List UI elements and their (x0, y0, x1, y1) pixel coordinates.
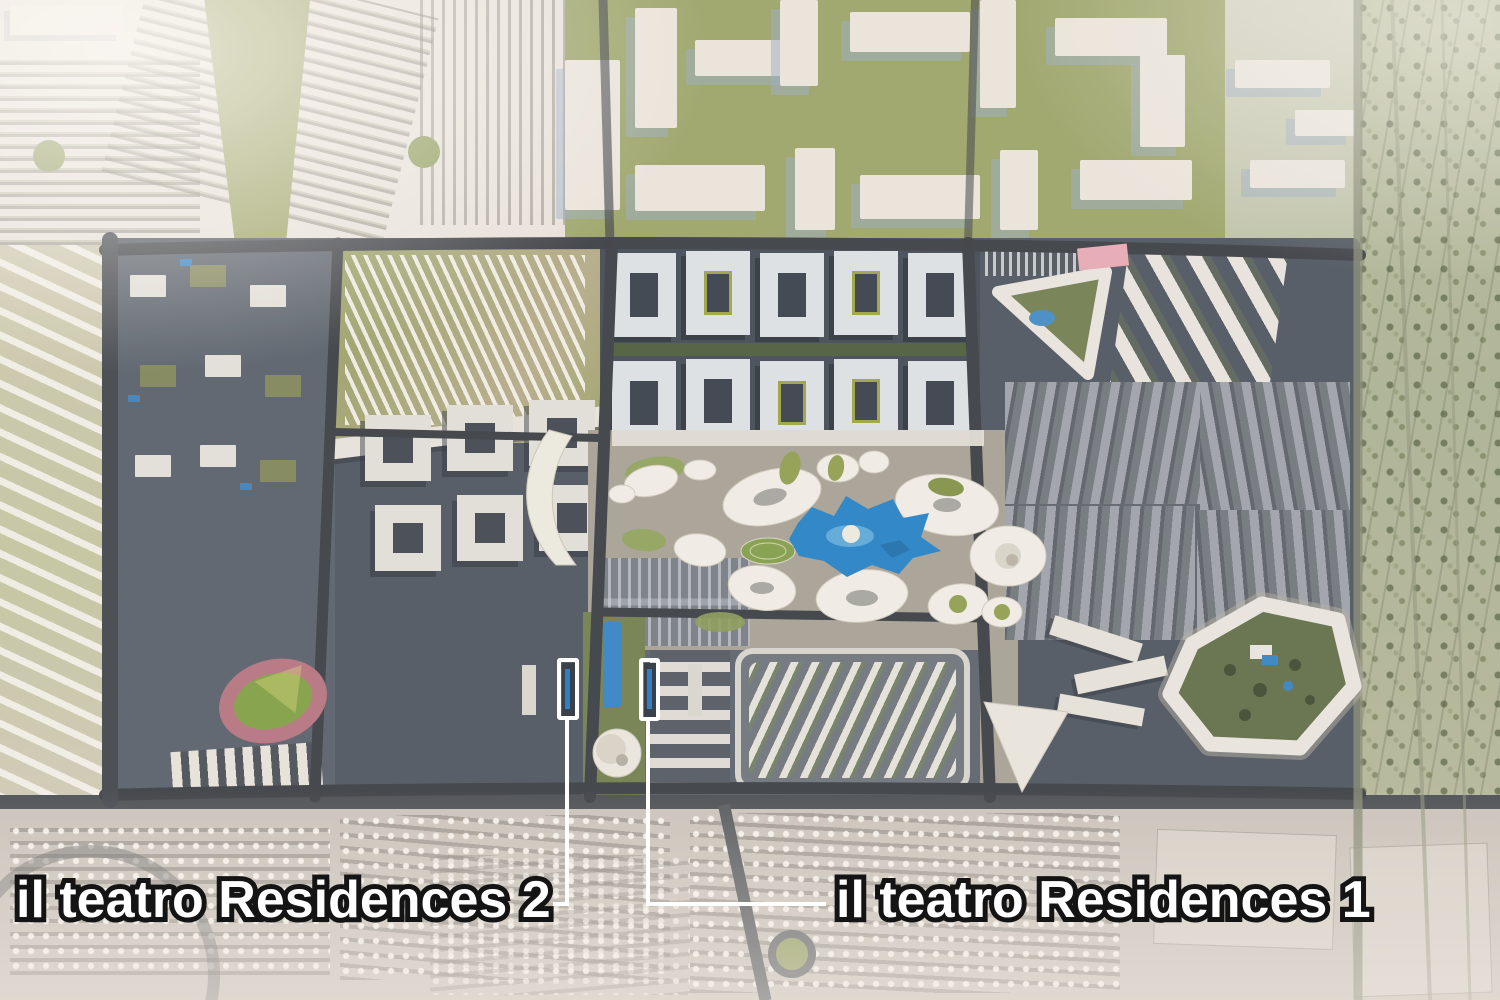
hexagon-ring-building (1170, 604, 1354, 748)
label-residences-2: il teatro Residences 2 il teatro Residen… (16, 874, 551, 926)
detail-overlay (0, 0, 1500, 1000)
callout-line-1-vertical (646, 719, 650, 906)
highlight-rect-residences-1 (639, 658, 660, 721)
label-residences-1: il teatro Residences 1 il teatro Residen… (836, 874, 1371, 926)
label-residences-1-text: il teatro Residences 1 (836, 874, 1371, 926)
callout-line-1-horizontal (646, 902, 826, 906)
label-residences-2-text: il teatro Residences 2 (16, 874, 551, 926)
highlight-rect-residences-2 (557, 658, 579, 720)
masterplan-aerial-view: il teatro Residences 2 il teatro Residen… (0, 0, 1500, 1000)
tower-slab (522, 665, 536, 715)
triangle-building (998, 272, 1106, 374)
callout-line-2-vertical (565, 718, 569, 906)
round-building (593, 729, 641, 777)
callout-line-2-foot (553, 902, 567, 906)
tower-slab (688, 664, 702, 716)
